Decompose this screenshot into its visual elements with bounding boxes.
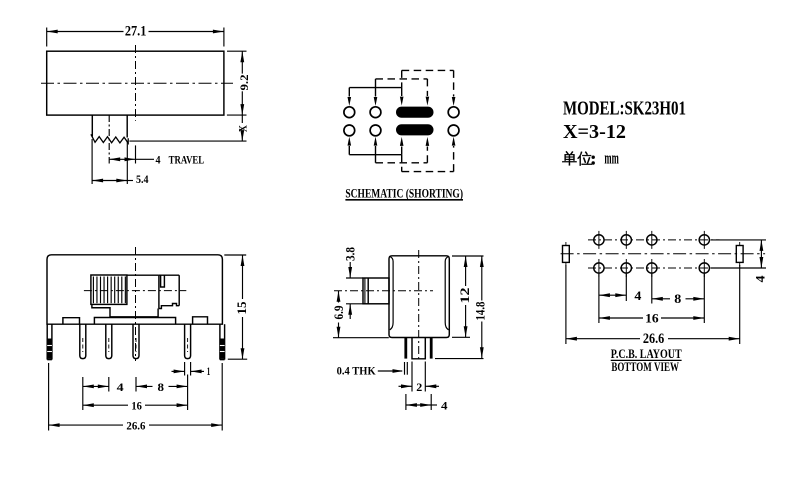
svg-text:4: 4 <box>117 380 124 394</box>
svg-text:X=3-12: X=3-12 <box>563 121 626 143</box>
svg-text:0.4 THK: 0.4 THK <box>337 364 377 378</box>
svg-text:MODEL:SK23H01: MODEL:SK23H01 <box>563 99 686 120</box>
svg-text:4: 4 <box>156 153 161 167</box>
svg-text:4: 4 <box>634 288 642 303</box>
svg-text:TRAVEL: TRAVEL <box>169 153 205 167</box>
svg-text:mm: mm <box>604 149 618 168</box>
svg-text:8: 8 <box>158 380 165 394</box>
svg-text:6.9: 6.9 <box>332 306 346 320</box>
svg-text:14.8: 14.8 <box>474 302 488 321</box>
svg-text:X: X <box>235 125 249 132</box>
svg-text:9.2: 9.2 <box>237 75 251 91</box>
svg-text:4: 4 <box>441 399 448 413</box>
svg-text:3.8: 3.8 <box>344 247 358 261</box>
svg-text:SCHEMATIC (SHORTING): SCHEMATIC (SHORTING) <box>345 185 463 200</box>
svg-text:5.4: 5.4 <box>136 172 149 186</box>
svg-text:BOTTOM VIEW: BOTTOM VIEW <box>611 359 679 374</box>
svg-text:1: 1 <box>207 364 211 378</box>
svg-text:2: 2 <box>416 380 422 394</box>
svg-text:12: 12 <box>458 288 472 304</box>
svg-text:26.6: 26.6 <box>643 331 665 347</box>
svg-text:4: 4 <box>753 275 768 283</box>
svg-text:16: 16 <box>131 399 142 413</box>
svg-text:27.1: 27.1 <box>125 24 147 40</box>
svg-text:15: 15 <box>235 302 249 315</box>
svg-text:8: 8 <box>674 291 682 306</box>
svg-text:16: 16 <box>645 310 659 325</box>
svg-text:26.6: 26.6 <box>126 418 145 432</box>
